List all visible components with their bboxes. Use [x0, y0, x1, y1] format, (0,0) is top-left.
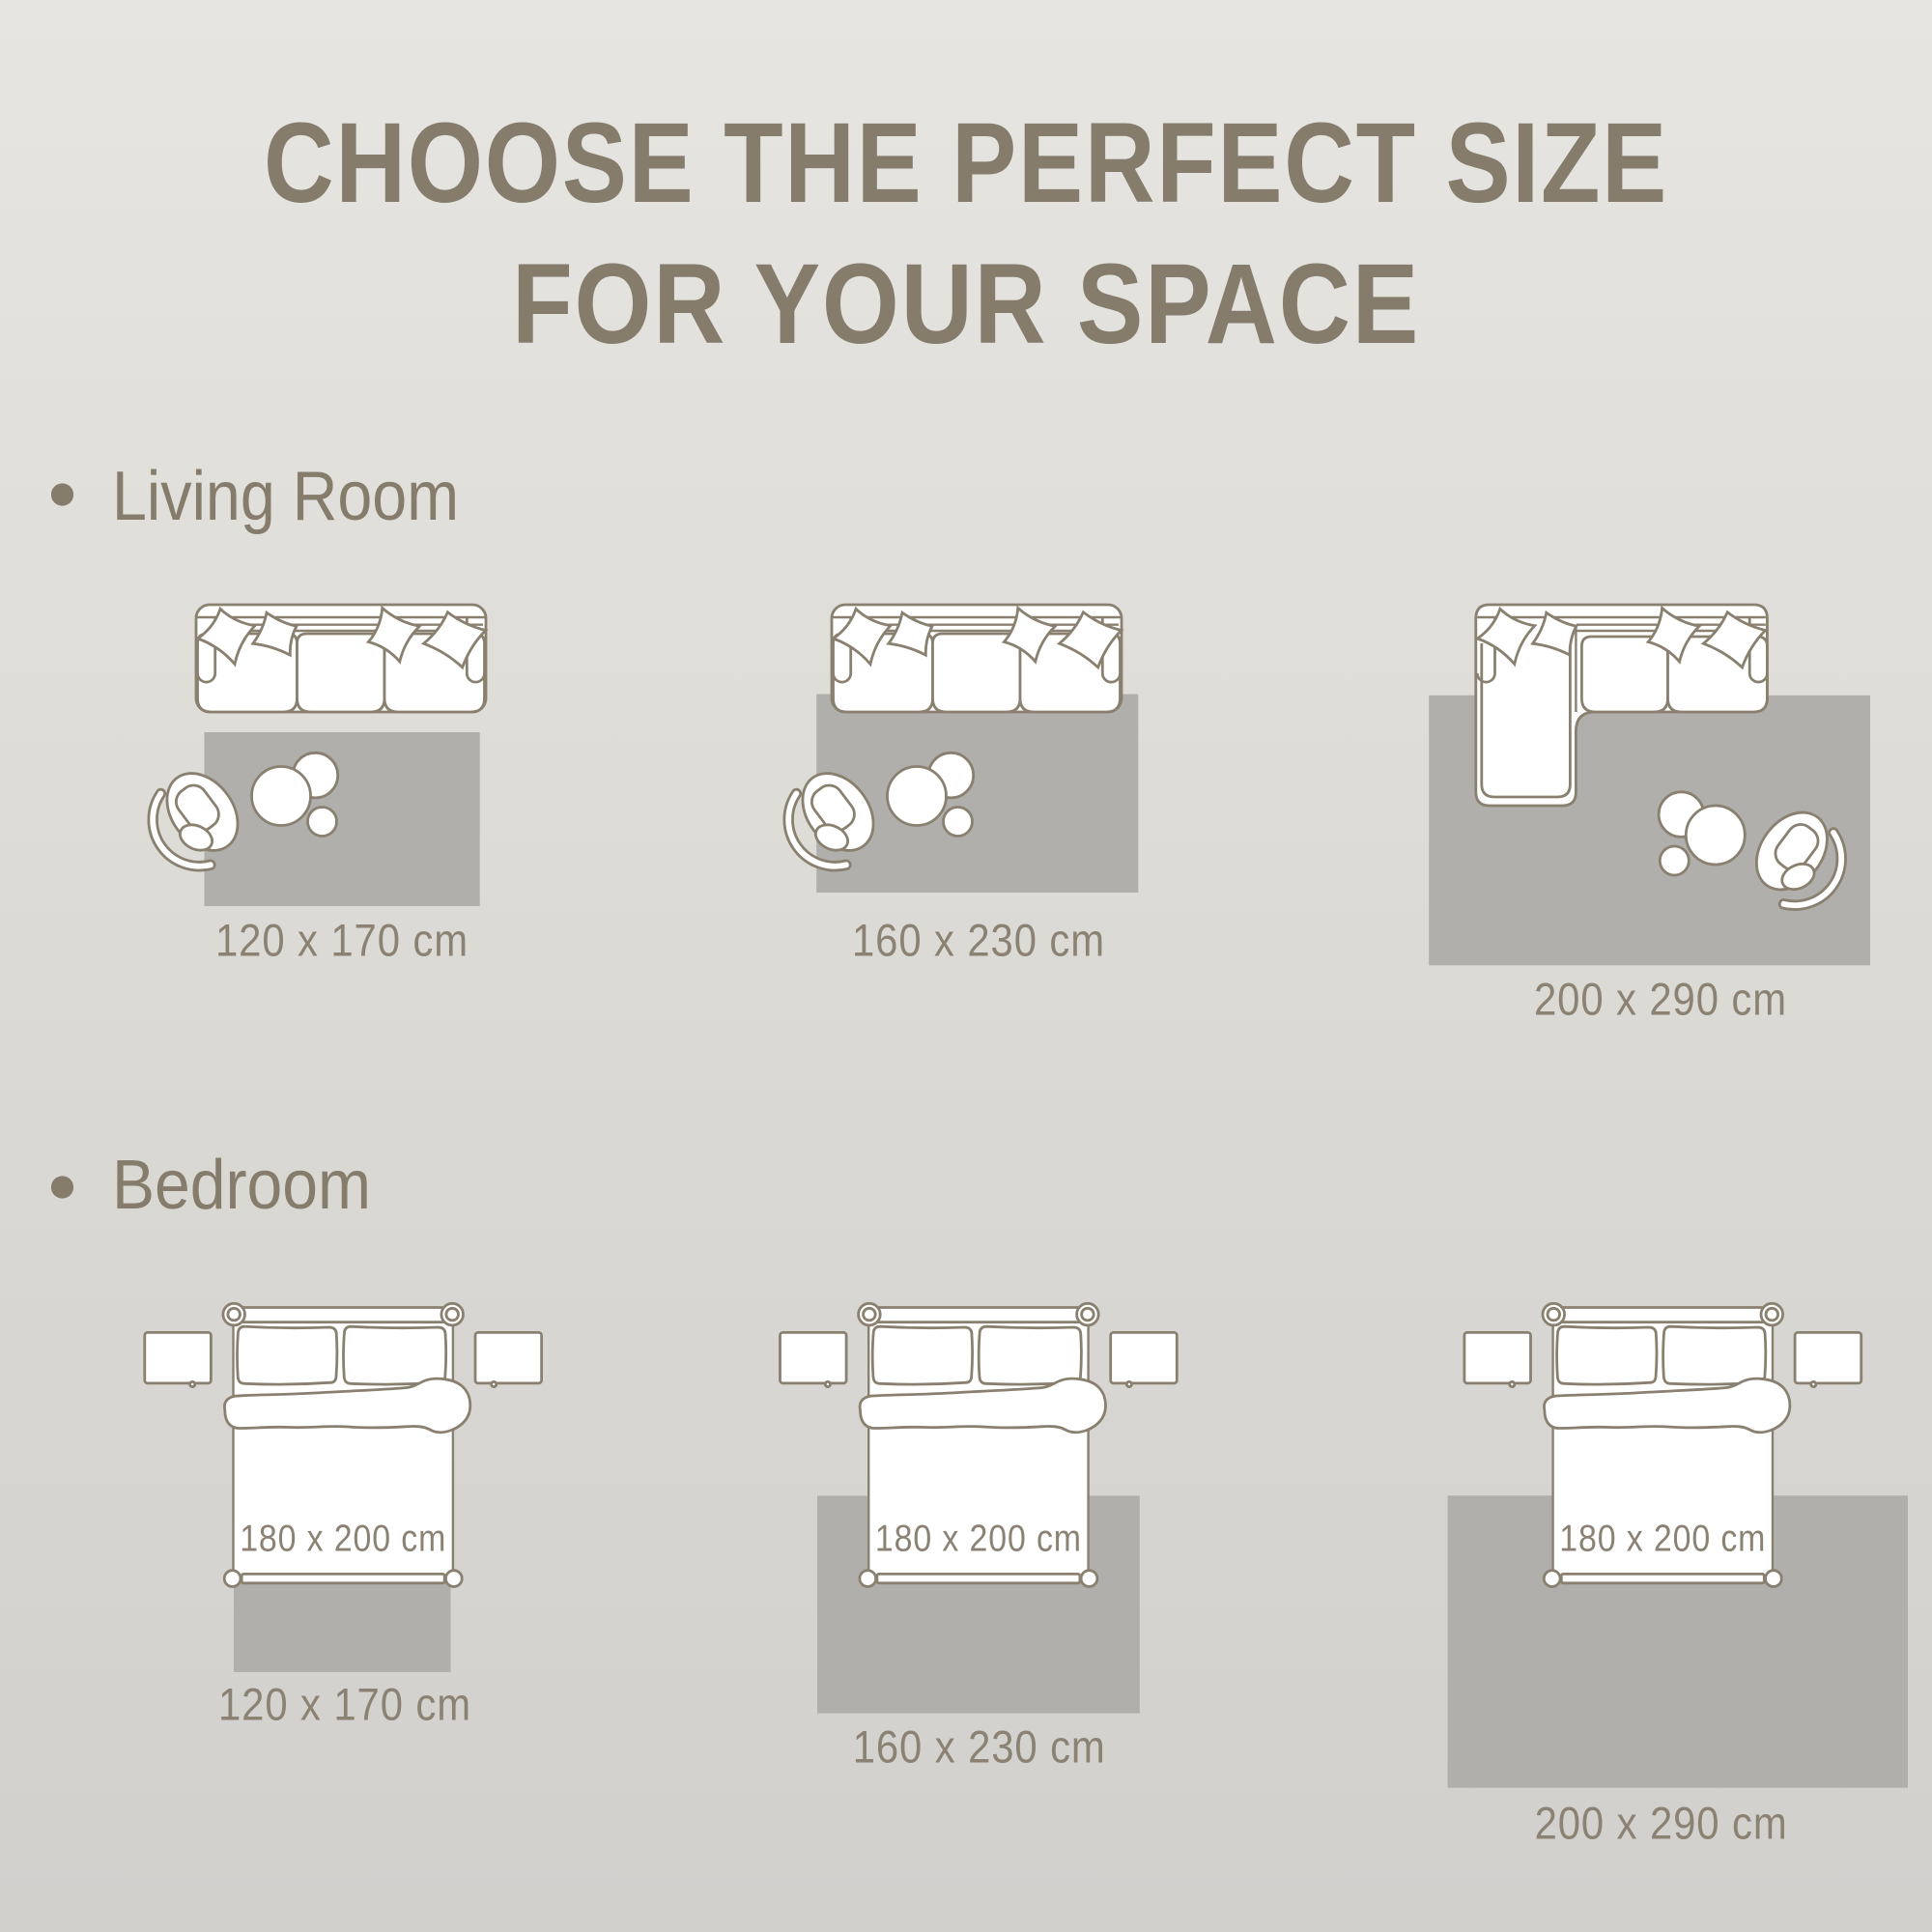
svg-text:160 x 230 cm: 160 x 230 cm — [852, 915, 1105, 966]
svg-text:FOR YOUR SPACE: FOR YOUR SPACE — [512, 241, 1420, 368]
svg-text:Living Room: Living Room — [112, 458, 459, 535]
svg-text:Bedroom: Bedroom — [112, 1147, 371, 1224]
svg-text:200 x 290 cm: 200 x 290 cm — [1534, 974, 1787, 1025]
svg-text:120 x 170 cm: 120 x 170 cm — [215, 915, 469, 966]
svg-text:160 x 230 cm: 160 x 230 cm — [853, 1721, 1106, 1773]
svg-text:CHOOSE THE PERFECT SIZE: CHOOSE THE PERFECT SIZE — [264, 99, 1668, 227]
svg-text:200 x 290 cm: 200 x 290 cm — [1535, 1798, 1788, 1849]
svg-text:120 x 170 cm: 120 x 170 cm — [218, 1679, 471, 1730]
